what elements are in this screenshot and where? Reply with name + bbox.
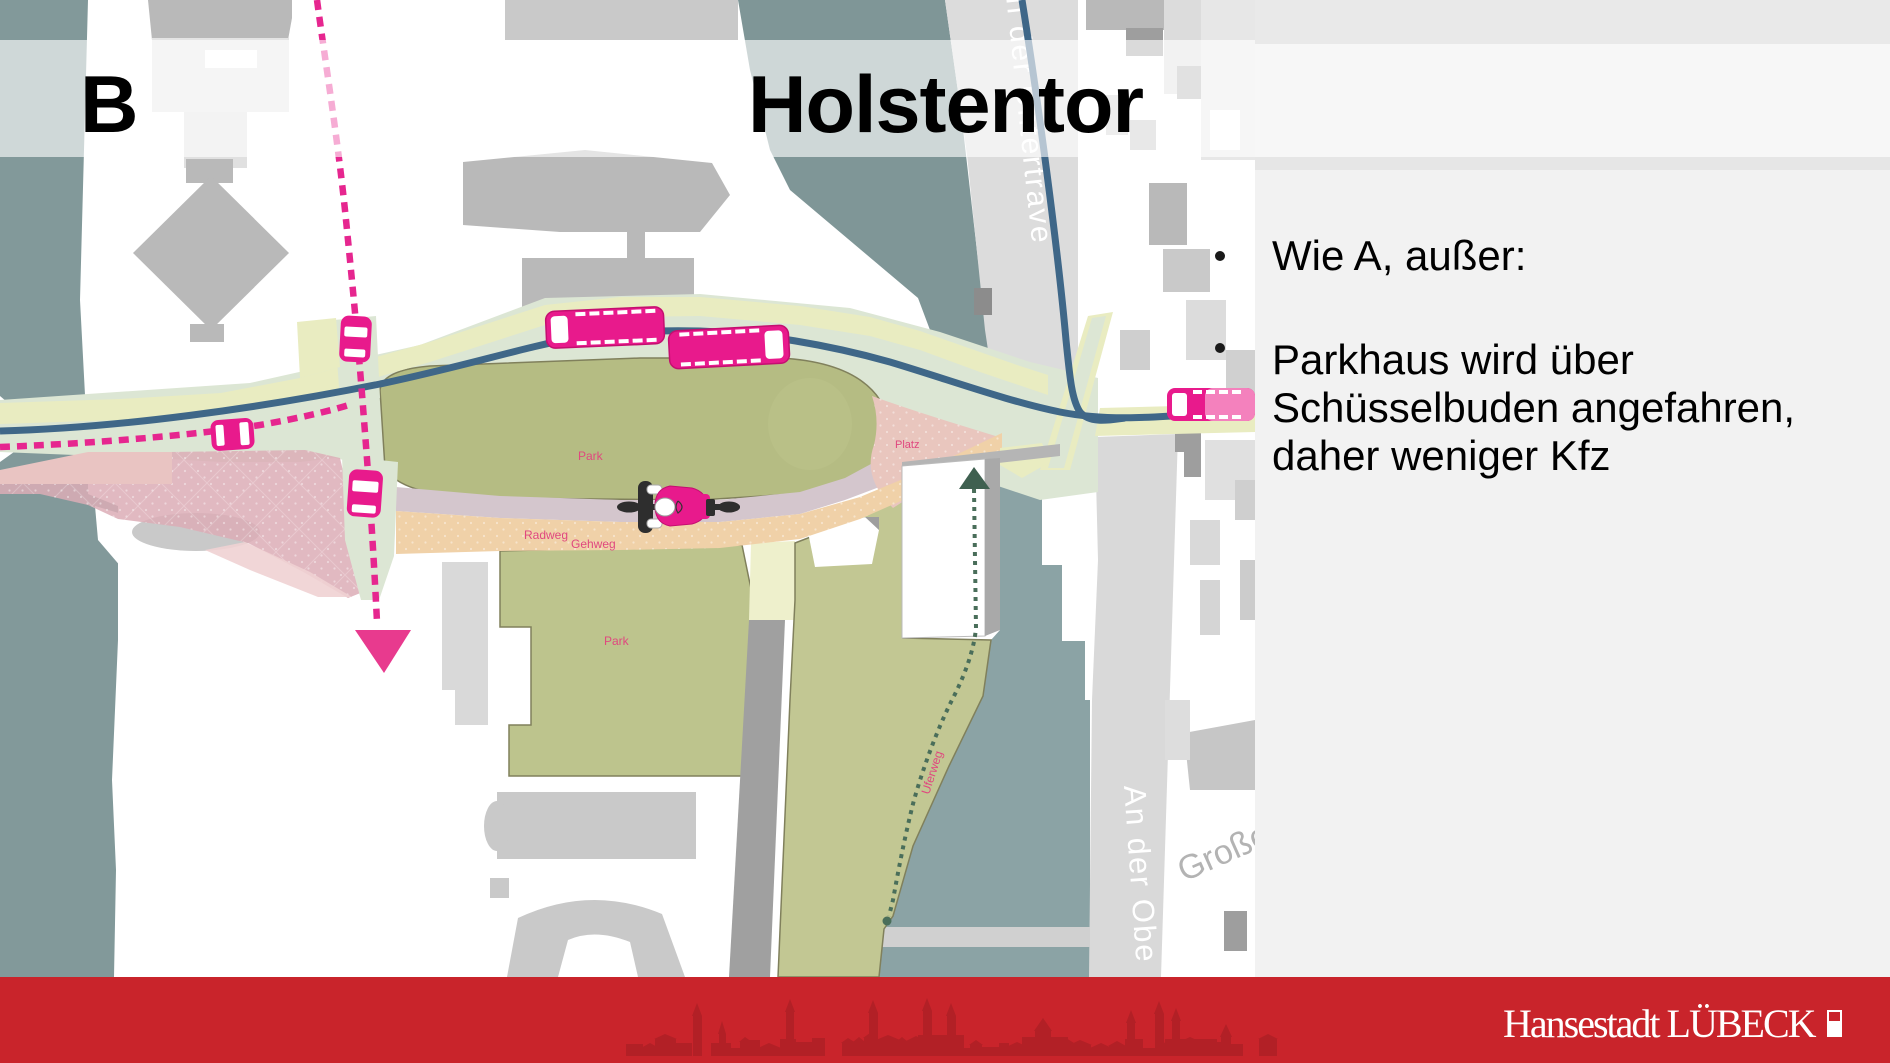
- svg-text:Park: Park: [604, 634, 630, 648]
- svg-text:Park: Park: [578, 449, 604, 463]
- svg-text:Radweg: Radweg: [524, 528, 568, 542]
- svg-text:Gehweg: Gehweg: [571, 537, 616, 551]
- svg-text:Platz: Platz: [895, 439, 919, 451]
